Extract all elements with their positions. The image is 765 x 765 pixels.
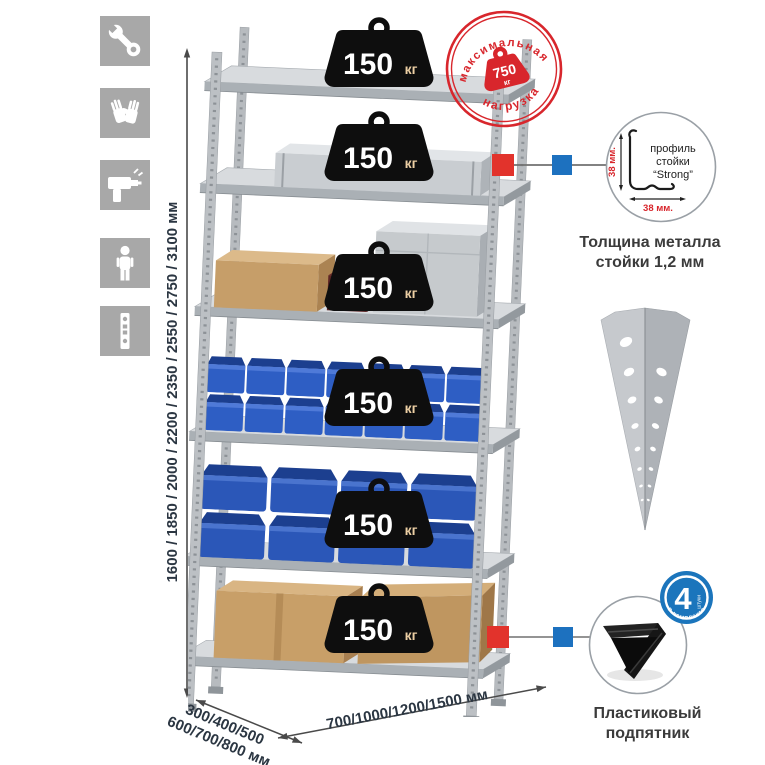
angle-profile-image	[593, 302, 698, 534]
profile-callout	[480, 140, 625, 190]
svg-text:стойки: стойки	[656, 156, 690, 168]
svg-text:150: 150	[343, 272, 393, 305]
svg-text:кг: кг	[405, 285, 418, 301]
caption-line: Толщина металла	[575, 233, 725, 253]
caption-line: стойки 1,2 мм	[575, 253, 725, 273]
width-dimensions-label: 700/1000/1200/1500 мм	[325, 686, 489, 733]
footprint-dimensions: 300/400/500 600/700/800 мм 700/1000/1200…	[0, 670, 765, 765]
profile-dim-horizontal: 38 мм.	[643, 203, 673, 214]
svg-text:150: 150	[343, 142, 393, 175]
svg-text:кг: кг	[405, 627, 418, 643]
metal-thickness-caption: Толщина металла стойки 1,2 мм	[575, 233, 725, 273]
svg-text:150: 150	[343, 48, 393, 81]
perforated-profile-icon	[100, 306, 150, 356]
foot-marker-blue	[553, 627, 573, 647]
shelf-load-badge: 150 кг	[325, 20, 434, 87]
svg-text:4: 4	[674, 581, 692, 616]
included-count-badge: в комплекте 4 штуки	[658, 569, 715, 626]
cardboard-box	[214, 249, 335, 312]
svg-text:кг: кг	[405, 522, 418, 538]
svg-text:150: 150	[343, 614, 393, 647]
person-icon	[100, 238, 150, 288]
svg-text:“Strong”: “Strong”	[653, 169, 693, 181]
svg-text:150: 150	[343, 387, 393, 420]
wrench-icon	[100, 16, 150, 66]
svg-text:кг: кг	[405, 400, 418, 416]
height-dimensions-label: 1600 / 1850 / 2000 / 2200 / 2350 / 2550 …	[164, 202, 181, 583]
post-profile-detail: 38 мм. 38 мм. профиль стойки “Strong”	[605, 111, 717, 223]
post-marker-blue	[552, 155, 572, 175]
svg-text:кг: кг	[405, 155, 418, 171]
product-infographic: 1600 / 1850 / 2000 / 2200 / 2350 / 2550 …	[0, 0, 765, 765]
foot-marker-red	[487, 626, 509, 648]
max-load-stamp: максимальная нагрузка 750 кг	[441, 6, 567, 132]
shelf-load-badge: 150 кг	[325, 114, 434, 181]
post-marker-red	[492, 154, 514, 176]
drill-icon	[100, 160, 150, 210]
profile-dim-vertical: 38 мм.	[607, 147, 618, 177]
svg-text:профиль: профиль	[650, 143, 696, 155]
svg-text:кг: кг	[405, 61, 418, 77]
svg-text:150: 150	[343, 509, 393, 542]
svg-text:штуки: штуки	[697, 595, 703, 609]
foot-callout	[475, 610, 600, 660]
gloves-icon	[100, 88, 150, 138]
